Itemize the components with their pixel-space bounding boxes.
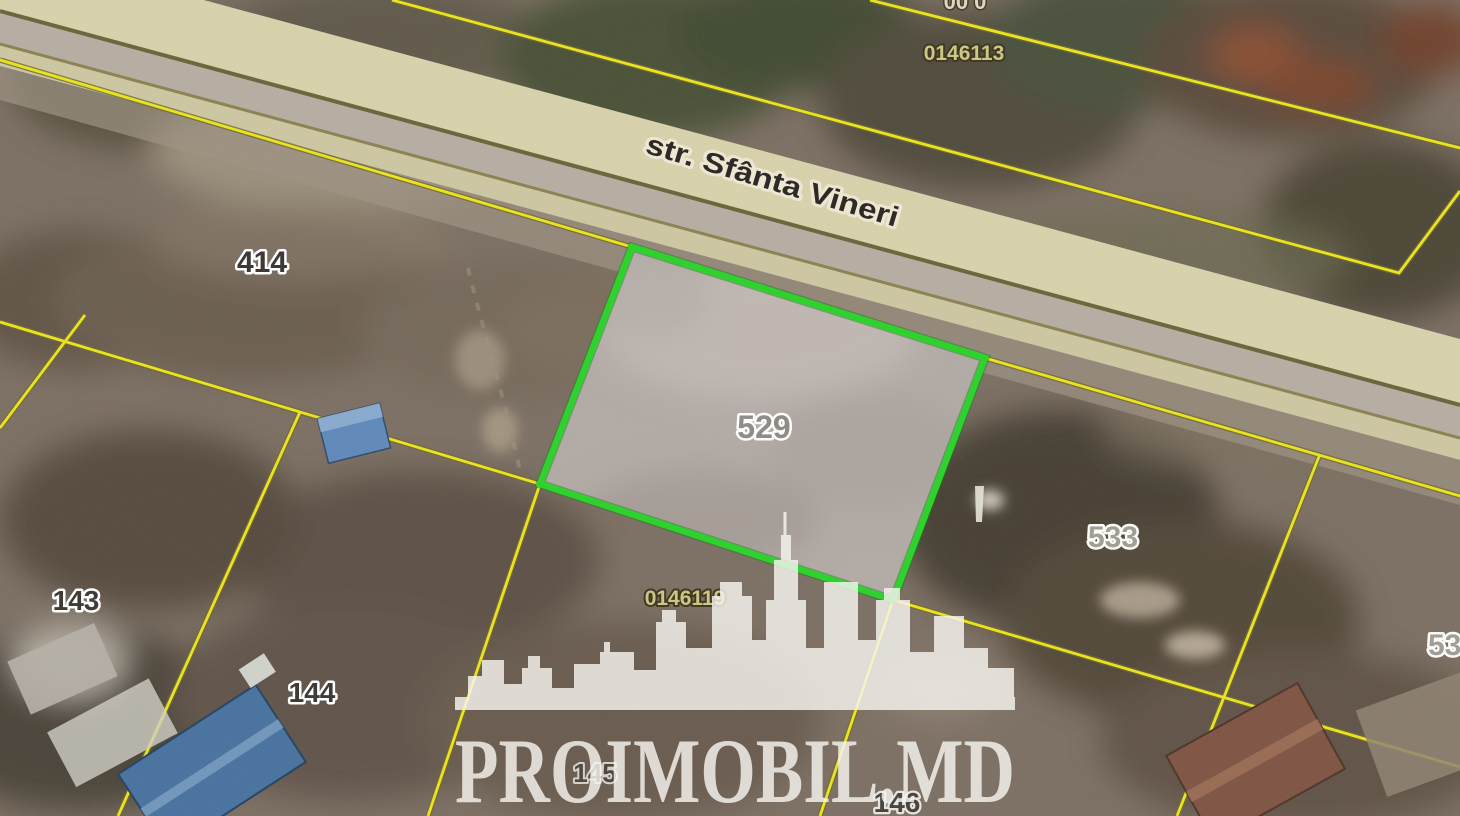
parcel-label-53-partial: 53 (1428, 629, 1460, 662)
watermark-brand-text: PROIMOBIL.MD (455, 720, 1015, 816)
parcel-label-414: 414 (237, 246, 287, 279)
parcel-label-529: 529 (737, 409, 790, 445)
watermark-bar (455, 697, 1015, 710)
map-image: str. Sfânta Vineri 414 529 533 143 144 1… (0, 0, 1460, 816)
satellite-map-canvas: str. Sfânta Vineri 414 529 533 143 144 1… (0, 0, 1460, 816)
cadastral-code-top-partial: 00 0 (944, 0, 987, 14)
parcel-label-143: 143 (53, 585, 100, 616)
parcel-label-533: 533 (1088, 521, 1138, 554)
cadastral-code-0146113: 0146113 (924, 42, 1005, 65)
parcel-label-144: 144 (289, 677, 336, 708)
